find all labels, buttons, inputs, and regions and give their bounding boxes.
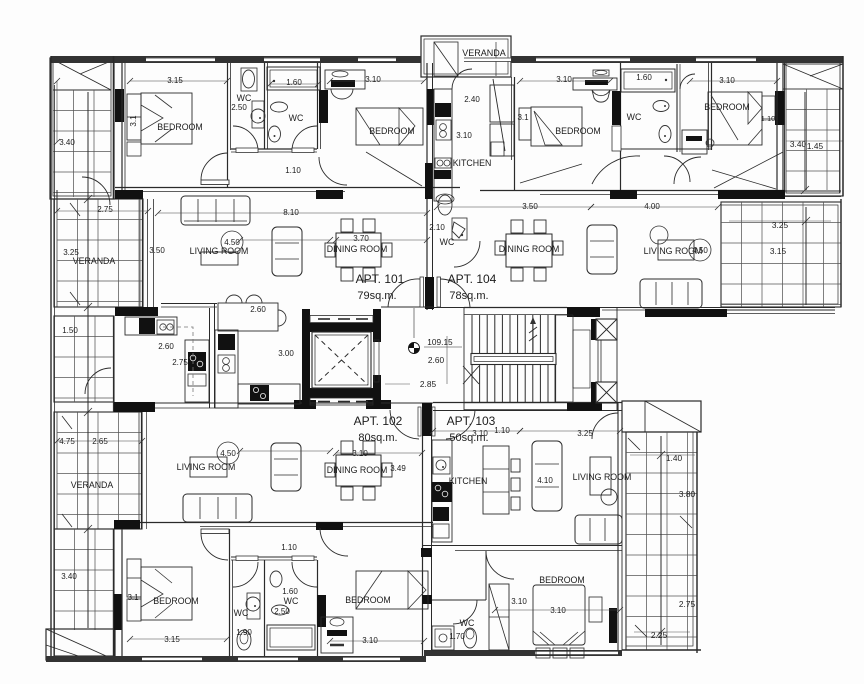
svg-text:WC: WC [234, 608, 249, 618]
svg-text:3.25: 3.25 [577, 429, 593, 438]
svg-text:3.15: 3.15 [167, 76, 183, 85]
svg-text:2.75: 2.75 [97, 205, 113, 214]
svg-text:2.75: 2.75 [679, 599, 696, 609]
svg-text:4.10: 4.10 [537, 476, 553, 485]
svg-text:3.10: 3.10 [511, 597, 527, 606]
svg-text:3.10: 3.10 [719, 76, 735, 85]
svg-text:78sq.m.: 78sq.m. [449, 290, 488, 302]
svg-text:3.10: 3.10 [472, 429, 488, 438]
svg-text:1.60: 1.60 [286, 78, 302, 87]
svg-text:4.75: 4.75 [59, 437, 75, 446]
svg-text:1.50: 1.50 [62, 326, 78, 335]
svg-text:2.25: 2.25 [651, 630, 668, 640]
svg-text:BEDROOM: BEDROOM [153, 596, 198, 606]
svg-text:KITCHEN: KITCHEN [449, 476, 488, 486]
svg-text:VERANDA: VERANDA [71, 480, 114, 490]
svg-text:APT. 101: APT. 101 [356, 272, 405, 286]
svg-text:3.25: 3.25 [772, 220, 789, 230]
svg-text:2.10: 2.10 [429, 223, 445, 232]
svg-text:3.10: 3.10 [456, 131, 472, 140]
svg-text:3.10: 3.10 [362, 636, 378, 645]
svg-text:3.1: 3.1 [127, 593, 139, 602]
svg-text:4.50: 4.50 [220, 449, 236, 458]
svg-text:2.65: 2.65 [92, 437, 108, 446]
svg-text:APT. 104: APT. 104 [448, 272, 497, 286]
svg-text:WC: WC [284, 596, 299, 606]
svg-text:WC: WC [237, 93, 252, 103]
svg-text:79sq.m.: 79sq.m. [357, 290, 396, 302]
svg-text:3.1: 3.1 [129, 115, 138, 127]
svg-text:4.50: 4.50 [692, 246, 708, 255]
svg-text:1.10: 1.10 [285, 166, 301, 175]
svg-text:3.40: 3.40 [790, 139, 807, 149]
svg-text:BEDROOM: BEDROOM [345, 595, 390, 605]
svg-text:1.45: 1.45 [807, 141, 824, 151]
svg-text:BEDROOM: BEDROOM [157, 122, 202, 132]
svg-text:BEDROOM: BEDROOM [369, 126, 414, 136]
svg-text:DINING ROOM: DINING ROOM [499, 244, 560, 254]
svg-text:2.75: 2.75 [172, 358, 188, 367]
svg-text:WC: WC [627, 112, 642, 122]
svg-text:APT. 102: APT. 102 [354, 414, 403, 428]
svg-text:1.60: 1.60 [282, 587, 298, 596]
svg-text:WC: WC [460, 618, 475, 628]
svg-text:1.10: 1.10 [494, 426, 510, 435]
svg-text:2.50: 2.50 [274, 607, 290, 616]
svg-text:APT. 103: APT. 103 [447, 414, 496, 428]
svg-text:WC: WC [289, 113, 304, 123]
svg-text:3.70: 3.70 [353, 234, 369, 243]
svg-text:3.15: 3.15 [770, 246, 787, 256]
svg-text:3.50: 3.50 [149, 246, 165, 255]
svg-text:3.10: 3.10 [550, 606, 566, 615]
svg-text:8.10: 8.10 [283, 208, 299, 217]
svg-text:WC: WC [440, 237, 455, 247]
svg-text:BEDROOM: BEDROOM [539, 575, 584, 585]
svg-text:1.40: 1.40 [666, 453, 683, 463]
svg-text:3.25: 3.25 [63, 248, 79, 257]
svg-text:3.50: 3.50 [522, 202, 538, 211]
svg-text:LIVING ROOM: LIVING ROOM [190, 246, 249, 256]
svg-text:2.60: 2.60 [428, 355, 445, 365]
svg-text:3.40: 3.40 [59, 138, 75, 147]
svg-text:2.85: 2.85 [420, 379, 437, 389]
svg-text:3.40: 3.40 [61, 572, 77, 581]
svg-text:3.15: 3.15 [164, 635, 180, 644]
svg-text:DINING ROOM: DINING ROOM [327, 465, 388, 475]
svg-text:3.10: 3.10 [365, 75, 381, 84]
svg-text:2.60: 2.60 [250, 305, 266, 314]
svg-text:2.60: 2.60 [158, 342, 174, 351]
svg-text:BEDROOM: BEDROOM [555, 126, 600, 136]
svg-text:3.1: 3.1 [517, 113, 529, 122]
svg-text:4.00: 4.00 [644, 202, 660, 211]
svg-text:3.00: 3.00 [278, 349, 294, 358]
svg-text:109.15: 109.15 [427, 337, 453, 347]
svg-text:2.40: 2.40 [464, 95, 480, 104]
svg-text:2.50: 2.50 [231, 103, 247, 112]
svg-text:1.10: 1.10 [281, 543, 297, 552]
svg-text:DINING ROOM: DINING ROOM [327, 244, 388, 254]
svg-text:VERANDA: VERANDA [462, 48, 506, 58]
svg-text:BEDROOM: BEDROOM [704, 102, 749, 112]
svg-text:3.10: 3.10 [352, 449, 368, 458]
svg-text:LIVING ROOM: LIVING ROOM [573, 472, 632, 482]
svg-text:3.49: 3.49 [390, 464, 406, 473]
svg-text:1.10: 1.10 [761, 114, 776, 123]
svg-text:3.10: 3.10 [556, 75, 572, 84]
svg-text:3.80: 3.80 [679, 489, 696, 499]
svg-text:80sq.m.: 80sq.m. [358, 432, 397, 444]
svg-text:VERANDA: VERANDA [73, 256, 116, 266]
svg-text:KITCHEN: KITCHEN [453, 158, 492, 168]
svg-text:1.60: 1.60 [636, 73, 652, 82]
svg-text:1.70: 1.70 [449, 632, 465, 641]
svg-text:1.90: 1.90 [236, 628, 252, 637]
